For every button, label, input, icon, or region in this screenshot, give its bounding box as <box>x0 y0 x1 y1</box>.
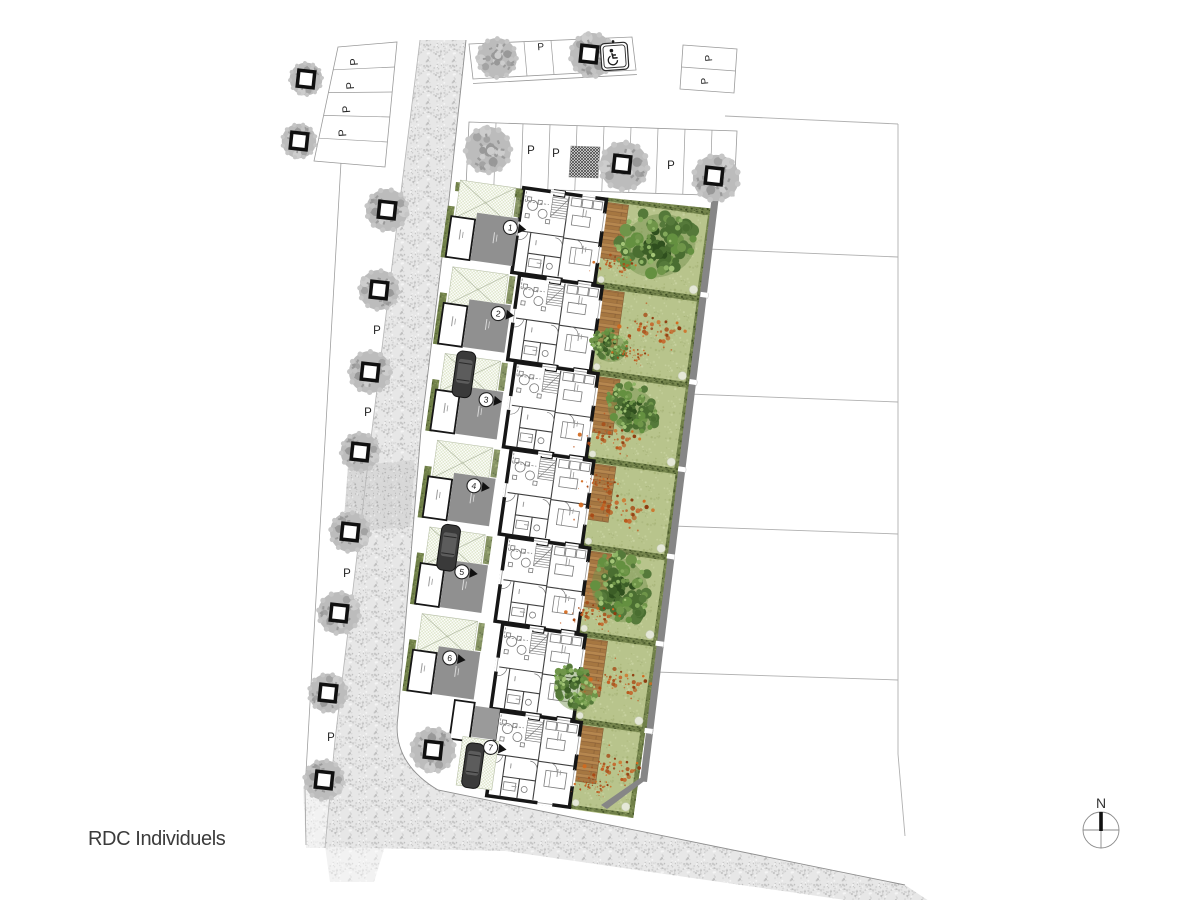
svg-text:P: P <box>667 160 675 172</box>
svg-text:P: P <box>700 77 712 85</box>
svg-text:P: P <box>343 568 351 580</box>
svg-text:P: P <box>552 148 560 160</box>
svg-text:P: P <box>348 58 361 66</box>
svg-text:P: P <box>527 145 535 157</box>
svg-text:P: P <box>327 732 335 744</box>
svg-text:P: P <box>537 42 545 53</box>
svg-text:P: P <box>345 81 358 89</box>
svg-text:P: P <box>341 105 354 113</box>
svg-text:P: P <box>704 54 716 62</box>
svg-text:P: P <box>337 129 350 137</box>
svg-text:RDC Individuels: RDC Individuels <box>88 828 226 850</box>
svg-text:P: P <box>364 407 372 419</box>
svg-text:P: P <box>373 325 381 337</box>
svg-text:N: N <box>1096 795 1106 811</box>
